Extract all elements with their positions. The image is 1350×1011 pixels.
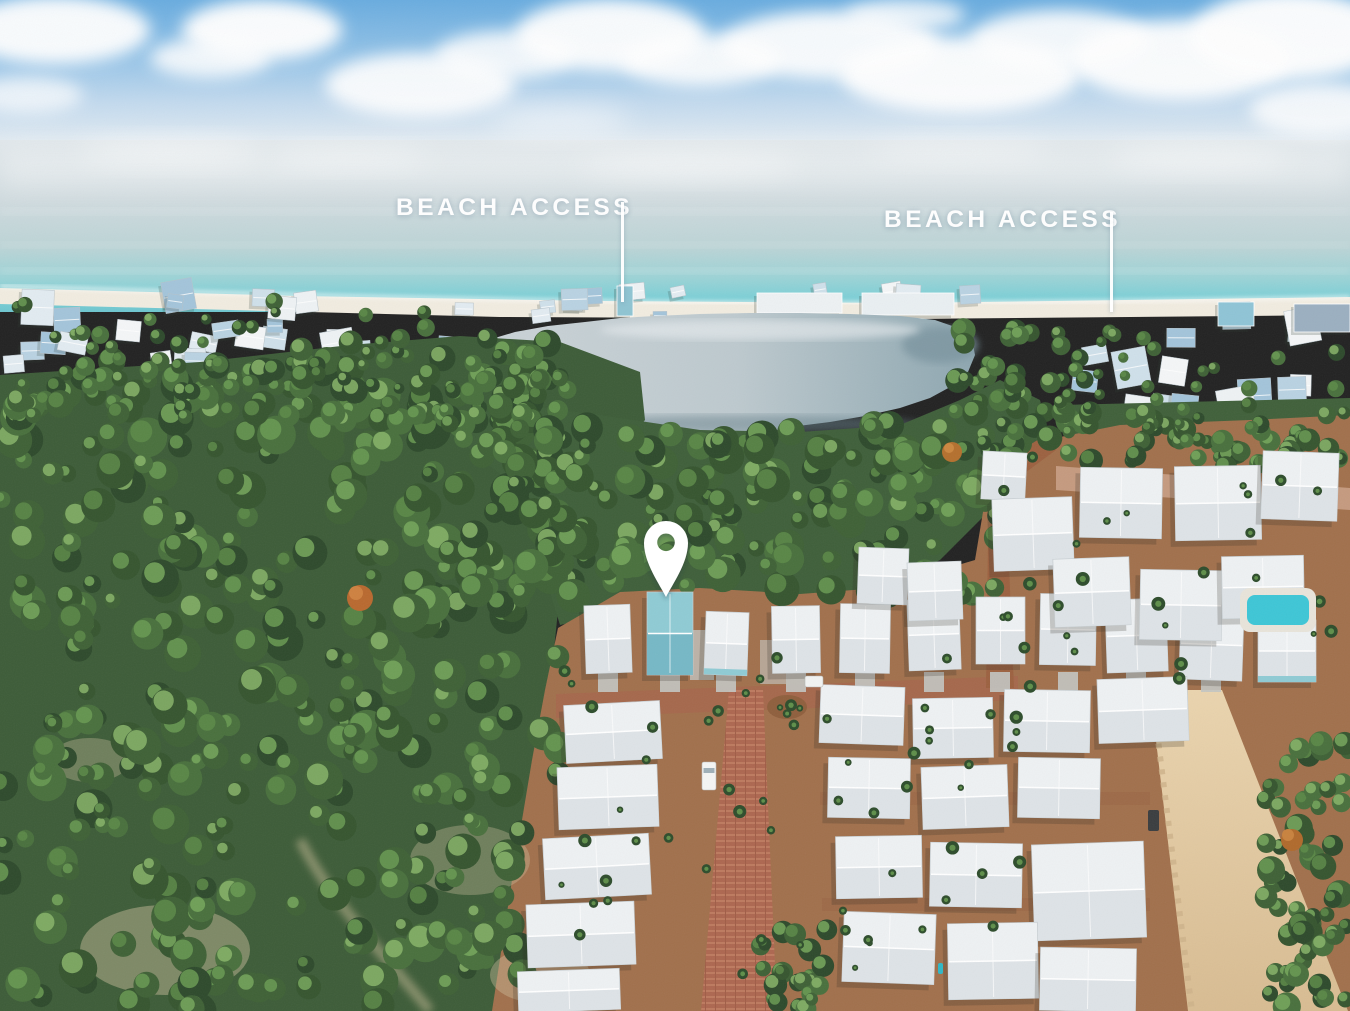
photo-grain bbox=[0, 0, 1350, 1011]
beach-access-label-right: BEACH ACCESS bbox=[884, 208, 1121, 233]
beach-access-pointer-line-left bbox=[621, 202, 624, 302]
aerial-photo-beach-community: BEACH ACCESS BEACH ACCESS bbox=[0, 0, 1350, 1011]
beach-access-pointer-line-right bbox=[1110, 212, 1113, 312]
beach-access-label-left: BEACH ACCESS bbox=[396, 196, 633, 221]
aerial-photo bbox=[0, 0, 1350, 1011]
